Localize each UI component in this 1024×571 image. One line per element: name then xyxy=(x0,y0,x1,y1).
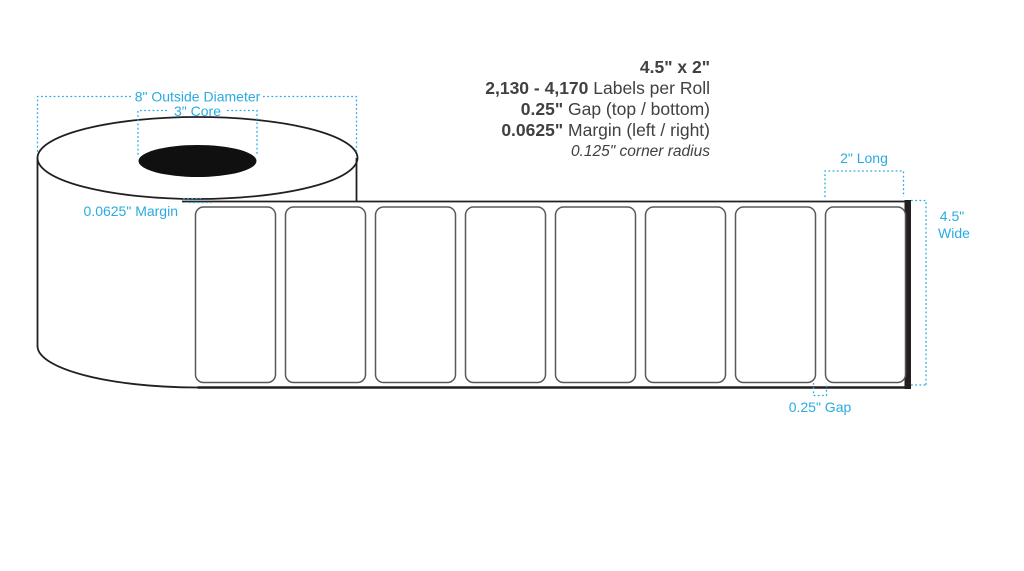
label-rect xyxy=(556,207,636,383)
label-rect xyxy=(646,207,726,383)
label-rect xyxy=(736,207,816,383)
core-label: 3" Core xyxy=(174,103,221,119)
label-rect xyxy=(466,207,546,383)
label-roll-diagram: 8" Outside Diameter 3" Core 0.0625" Marg… xyxy=(0,0,1024,571)
label-rect xyxy=(196,207,276,383)
label-length-bracket xyxy=(825,171,904,197)
gap-label: 0.25" Gap xyxy=(789,399,852,415)
spec-corner-radius: 0.125" corner radius xyxy=(485,141,710,162)
margin-label: 0.0625" Margin xyxy=(84,203,178,219)
spec-gap: 0.25" Gap (top / bottom) xyxy=(485,99,710,120)
label-rect xyxy=(826,207,906,383)
label-length-label: 2" Long xyxy=(840,150,888,166)
spec-size: 4.5" x 2" xyxy=(485,57,710,78)
roll-bottom-curve xyxy=(38,346,198,388)
spec-labels-per-roll: 2,130 - 4,170 Labels per Roll xyxy=(485,78,710,99)
label-rect xyxy=(376,207,456,383)
spec-block: 4.5" x 2" 2,130 - 4,170 Labels per Roll … xyxy=(485,57,710,162)
label-width-label-line1: 4.5" xyxy=(940,208,964,224)
label-width-label-line2: Wide xyxy=(938,225,970,241)
label-strip xyxy=(182,200,911,389)
labels-row xyxy=(196,207,906,383)
roll-core xyxy=(139,145,257,177)
spec-margin: 0.0625" Margin (left / right) xyxy=(485,120,710,141)
label-rect xyxy=(286,207,366,383)
label-width-bracket xyxy=(911,201,926,386)
gap-bracket xyxy=(814,383,827,396)
